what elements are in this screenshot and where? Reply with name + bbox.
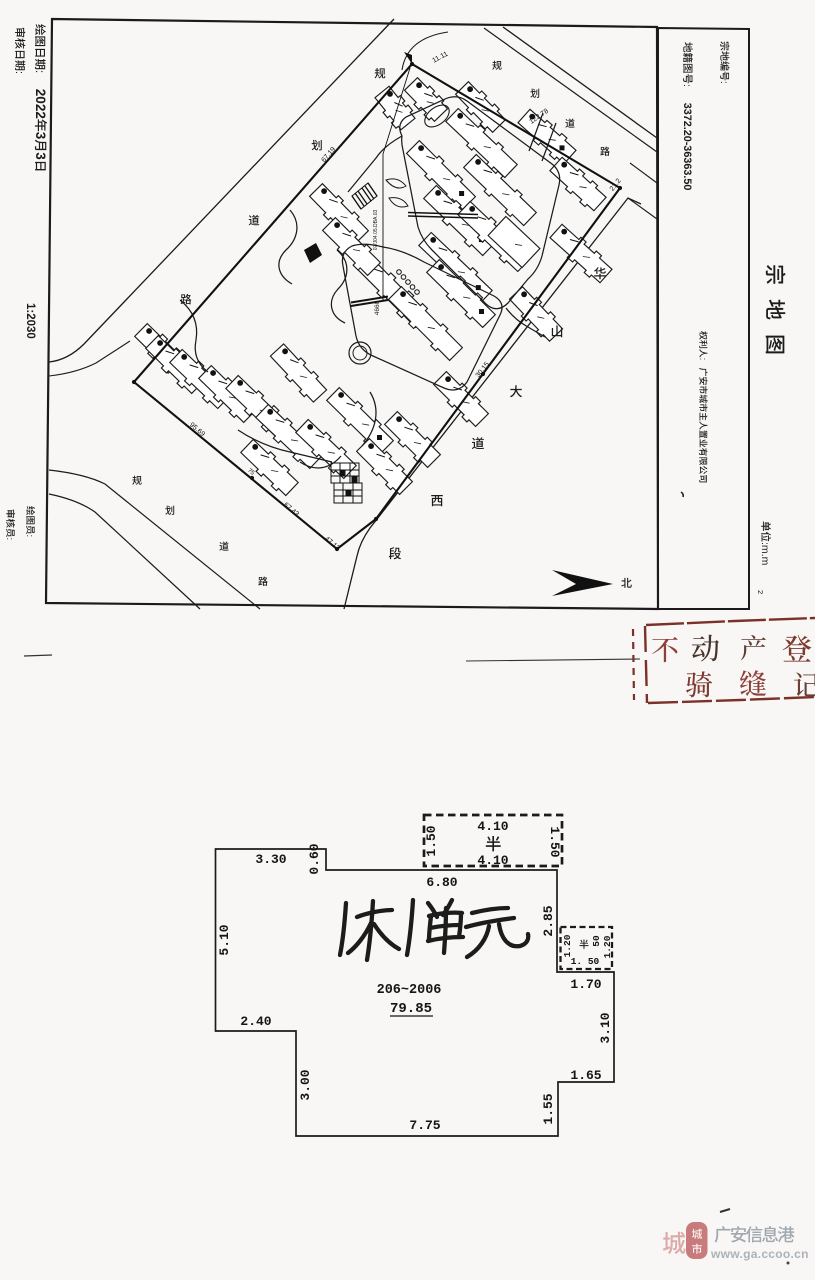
svg-text:1.65: 1.65 — [570, 1068, 601, 1083]
svg-text:7.75: 7.75 — [409, 1118, 440, 1133]
svg-text:2.40: 2.40 — [240, 1014, 271, 1029]
svg-text:1:2030: 1:2030 — [24, 303, 36, 339]
svg-text:4.10: 4.10 — [477, 853, 508, 868]
svg-text:1.20: 1.20 — [562, 934, 573, 957]
svg-text::: : — [33, 70, 45, 73]
svg-text:3372.20-36363.50: 3372.20-36363.50 — [681, 103, 693, 191]
svg-text:3.10: 3.10 — [598, 1012, 613, 1043]
svg-text::m.m: :m.m — [759, 542, 771, 566]
svg-text:3.30: 3.30 — [255, 852, 286, 867]
svg-text:6.80: 6.80 — [426, 875, 457, 890]
svg-text::: : — [24, 535, 35, 538]
svg-text::: : — [4, 538, 15, 541]
svg-text:1. 50: 1. 50 — [571, 956, 600, 967]
svg-text:3: 3 — [33, 152, 48, 160]
svg-text:5.10: 5.10 — [217, 924, 232, 955]
svg-text:2: 2 — [756, 590, 765, 594]
svg-text:07/J04.05.DBA.03: 07/J04.05.DBA.03 — [373, 209, 379, 250]
svg-text:2022: 2022 — [33, 89, 48, 119]
svg-text:79.85: 79.85 — [390, 1001, 432, 1017]
svg-text:50: 50 — [591, 935, 602, 947]
svg-text:1.50: 1.50 — [424, 825, 439, 856]
svg-text:3: 3 — [33, 132, 48, 140]
svg-text:1.50: 1.50 — [547, 826, 562, 857]
svg-text:4.10: 4.10 — [477, 819, 508, 834]
svg-text::: : — [718, 81, 729, 84]
svg-text:3.00: 3.00 — [298, 1069, 313, 1100]
svg-text:www.ga.ccoo.cn: www.ga.ccoo.cn — [710, 1247, 809, 1261]
svg-text:1.20: 1.20 — [602, 935, 613, 958]
svg-text:2.85: 2.85 — [541, 905, 556, 936]
svg-text:1.70: 1.70 — [570, 977, 601, 992]
svg-text:0.60: 0.60 — [307, 843, 322, 874]
svg-text::: : — [681, 84, 693, 87]
svg-text:1.55: 1.55 — [541, 1093, 556, 1124]
svg-text:4660: 4660 — [374, 300, 381, 315]
svg-text::: : — [698, 358, 708, 360]
svg-text:206~2006: 206~2006 — [377, 983, 442, 998]
svg-text::: : — [13, 71, 25, 74]
